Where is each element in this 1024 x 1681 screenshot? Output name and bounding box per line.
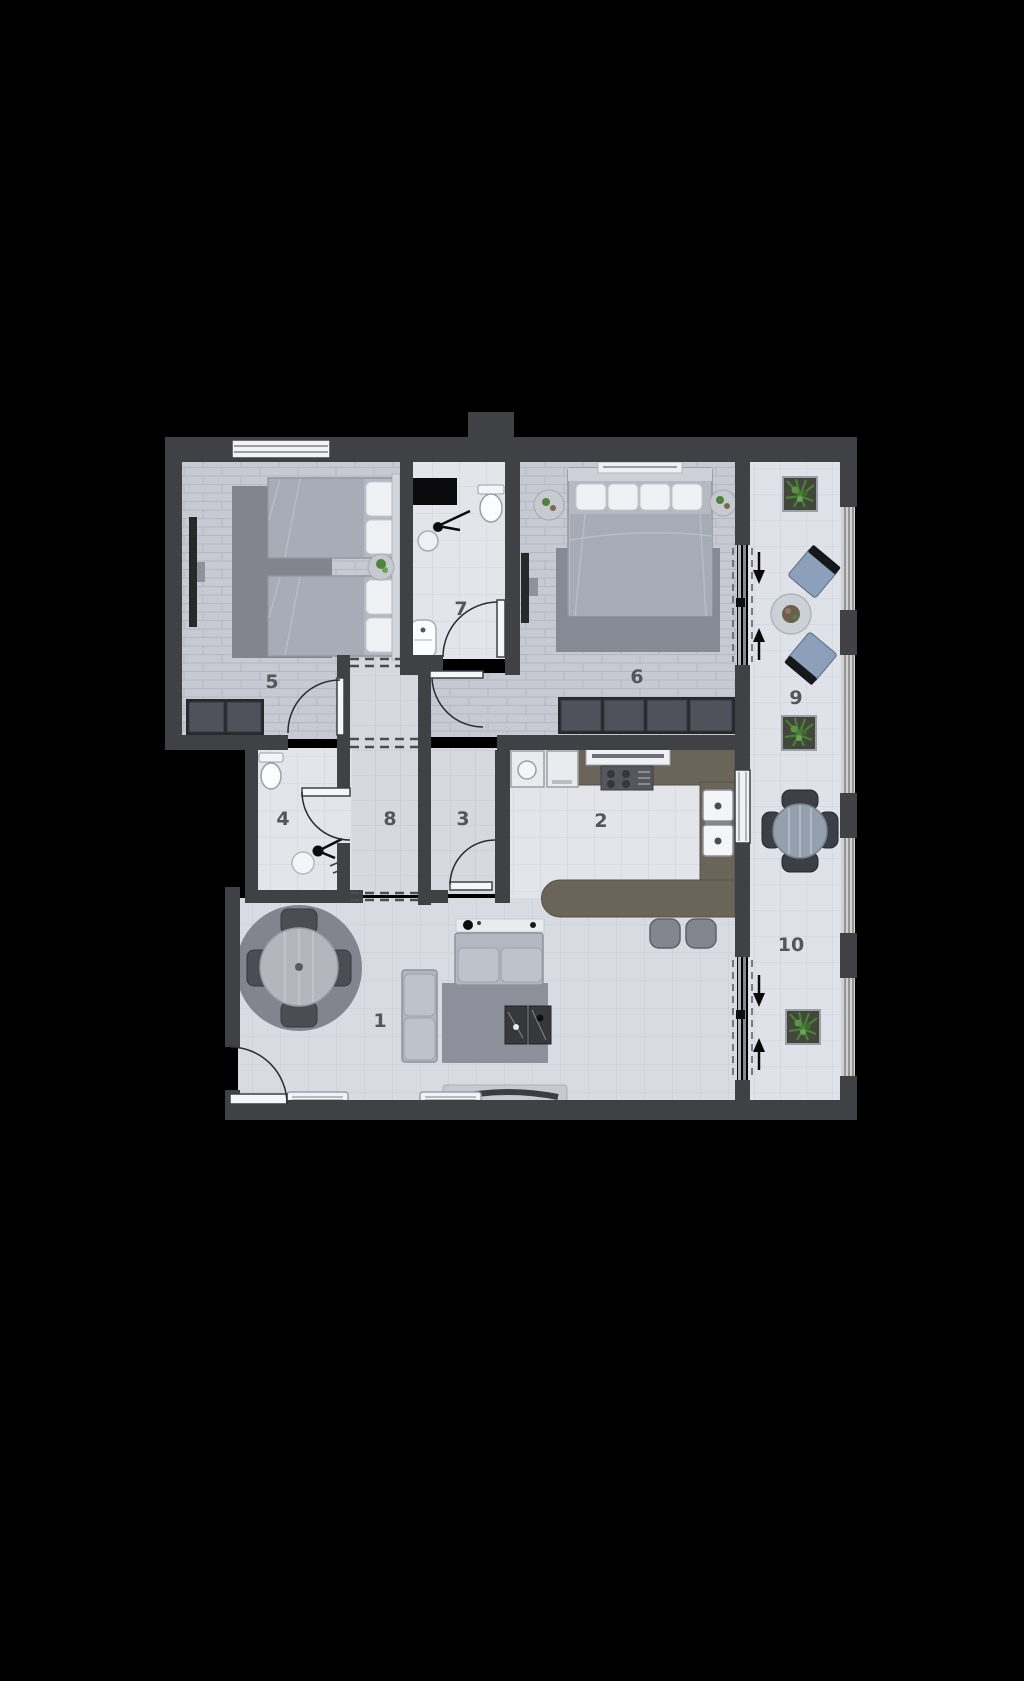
hallway-8-floor <box>348 658 420 895</box>
wall-right-c <box>735 843 750 957</box>
pillow <box>640 484 670 510</box>
toilet <box>261 763 281 789</box>
room-label-6: 6 <box>630 666 643 688</box>
wall-mid-a <box>165 735 288 750</box>
room-label-2: 2 <box>594 810 607 832</box>
railing-glass <box>841 507 855 610</box>
window-bedroom-5 <box>232 440 330 458</box>
wall-hall-right <box>418 655 431 905</box>
wall-room3-bottom-a <box>418 890 448 903</box>
railing-pillar <box>840 437 857 507</box>
pillow <box>366 580 396 614</box>
sliding-door-handle <box>736 1010 745 1019</box>
toilet-tank <box>259 753 283 762</box>
room-label-1: 1 <box>373 1010 386 1032</box>
room-label-5: 5 <box>265 671 278 693</box>
dishwasher-handle <box>552 780 572 784</box>
bed-duvet <box>269 577 364 655</box>
bathroom-7-sink <box>410 620 436 658</box>
railing-glass <box>841 655 855 793</box>
wall-living-left <box>225 887 240 1047</box>
side-table <box>534 490 564 520</box>
room-label-9: 9 <box>789 687 802 709</box>
balcony-railing <box>841 507 855 1076</box>
sliding-door-handle <box>736 598 745 607</box>
wall-right-b <box>735 665 750 770</box>
room-label-8: 8 <box>383 808 396 830</box>
pillow <box>366 520 396 554</box>
wall-mid-b <box>497 735 735 750</box>
table-plant <box>782 605 800 623</box>
tv-stand <box>197 562 205 582</box>
window-kitchen <box>735 770 750 843</box>
room-label-10: 10 <box>778 934 804 956</box>
bar-chair <box>650 919 680 948</box>
room-label-7: 7 <box>454 598 467 620</box>
pillow <box>576 484 606 510</box>
pillow <box>672 484 702 510</box>
wall-right-a <box>735 437 750 545</box>
shower-head <box>313 846 324 857</box>
washing-machine-door <box>518 761 536 779</box>
side-table <box>710 490 736 516</box>
shower-head <box>418 531 438 551</box>
wall-bottom <box>225 1100 857 1120</box>
sofa-cushion <box>501 948 542 982</box>
kitchen-breakfast-bar <box>542 880 736 917</box>
toilet-niche-wall <box>468 412 514 439</box>
floor-plan-page: 1 2 3 4 5 6 7 8 9 10 <box>0 0 1024 1681</box>
sofa-cushion <box>404 974 435 1016</box>
railing-glass <box>841 978 855 1076</box>
railing-pillar <box>840 1076 857 1120</box>
wall-left-upper <box>165 437 182 750</box>
bathroom-7-vanity <box>413 478 457 505</box>
wall-bath4-bottom <box>245 890 363 903</box>
floor-plan-svg: 1 2 3 4 5 6 7 8 9 10 <box>0 0 1024 1681</box>
plant <box>783 477 817 511</box>
bedroom-6-entry-floor <box>429 673 520 737</box>
console-decor <box>463 920 473 930</box>
bar-chair <box>686 919 716 948</box>
shower-drain <box>292 852 314 874</box>
wall-bath4-left <box>245 735 258 903</box>
pillow <box>366 482 396 516</box>
wall-hall-left-b <box>337 843 350 893</box>
wall-room3-right <box>495 750 510 903</box>
room-label-4: 4 <box>276 808 289 830</box>
tv-stand <box>529 578 538 596</box>
sofa-cushion <box>458 948 499 982</box>
bed-duvet <box>570 514 712 616</box>
bed-duvet <box>269 479 364 557</box>
pillow <box>366 618 396 652</box>
railing-glass <box>841 838 855 933</box>
railing-pillar <box>840 793 857 838</box>
tv-bedroom-6 <box>521 553 529 623</box>
railing-pillar <box>840 610 857 655</box>
sofa-cushion <box>404 1018 435 1060</box>
tv-bedroom-5 <box>189 517 197 627</box>
plant <box>786 1010 820 1044</box>
toilet <box>480 494 502 522</box>
railing-pillar <box>840 933 857 978</box>
wall-room5-bath7 <box>400 437 413 655</box>
wall-bath7-room6 <box>505 437 520 675</box>
pillow <box>608 484 638 510</box>
toilet-tank <box>478 485 504 494</box>
plant <box>782 716 816 750</box>
room-label-3: 3 <box>456 808 469 830</box>
